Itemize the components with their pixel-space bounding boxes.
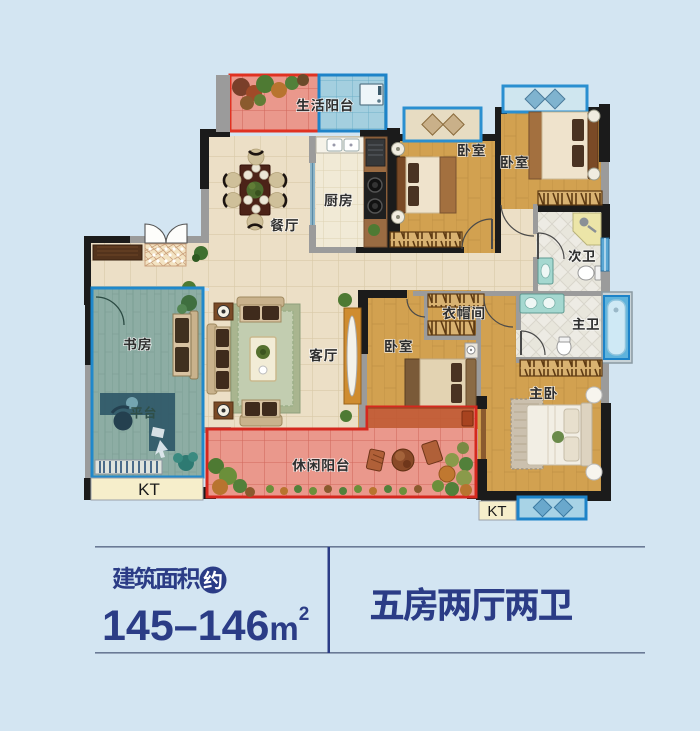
svg-text:145–146m2: 145–146m2 xyxy=(102,602,309,650)
svg-text:KT: KT xyxy=(138,480,160,499)
svg-text:KT: KT xyxy=(487,503,506,520)
